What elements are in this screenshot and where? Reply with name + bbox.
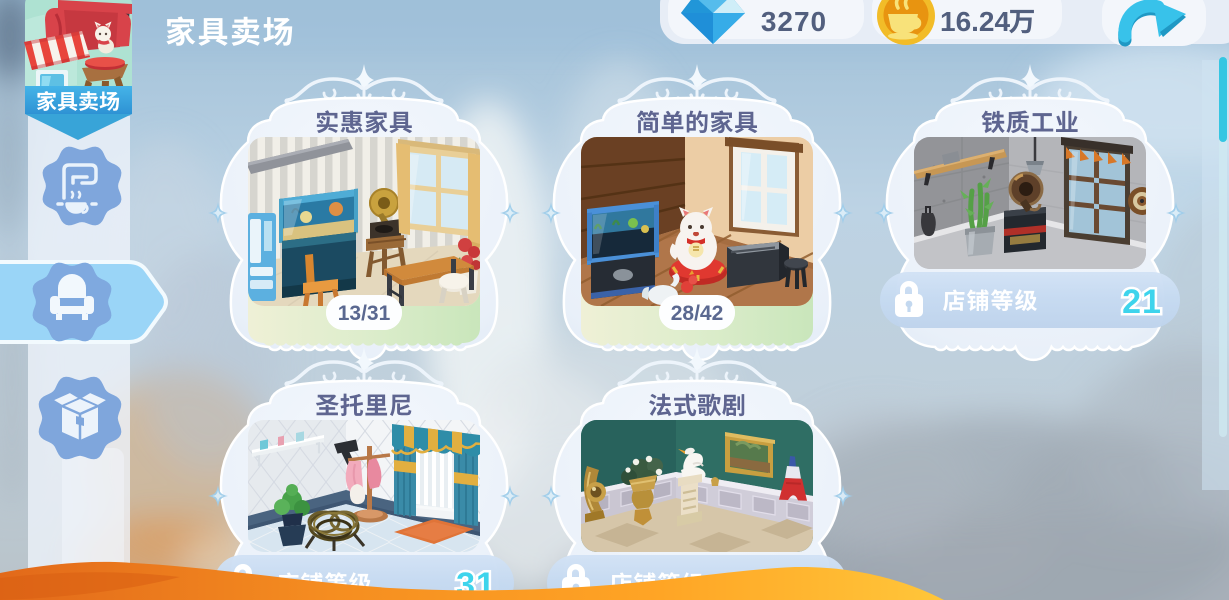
svg-text:3270: 3270 (761, 6, 827, 37)
svg-text:21: 21 (1122, 283, 1162, 321)
svg-text:13/31: 13/31 (338, 302, 391, 325)
svg-text:28/42: 28/42 (671, 302, 724, 325)
svg-text:16.24: 16.24 (940, 6, 1010, 37)
